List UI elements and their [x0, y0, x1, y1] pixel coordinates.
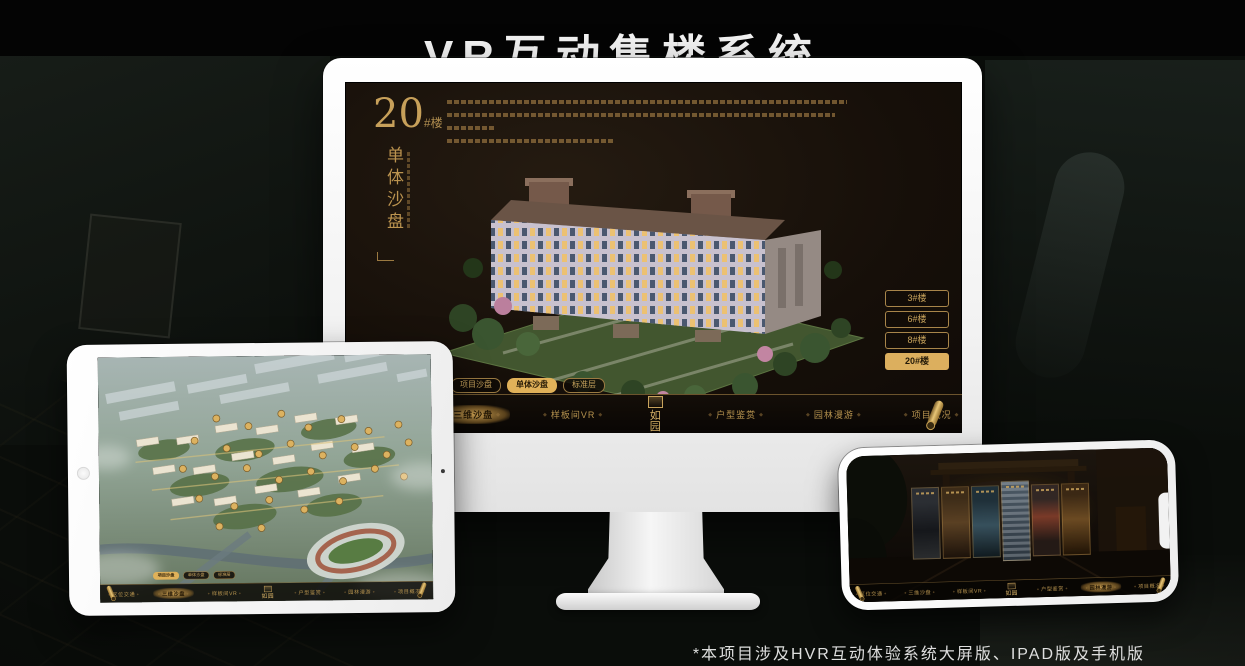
phone-frame: 区位交通 三维沙盘 样板间VR 如园 户型鉴赏 园林漫游 项目概况 [838, 439, 1179, 610]
sandbox-headline: 20#楼 单体沙盘 [373, 94, 443, 134]
floor-button-20[interactable]: 20#楼 [885, 353, 949, 370]
floor-button-3[interactable]: 3#楼 [885, 290, 949, 307]
floor-button-8[interactable]: 8#楼 [885, 332, 949, 349]
tablet-home-button[interactable] [77, 467, 90, 480]
brand-logo-text: 如园 [1005, 590, 1018, 596]
phone-notch [1158, 492, 1171, 548]
tablet-screen: 项目沙盘 单体沙盘 标准层 区位交通 三维沙盘 样板间VR 如园 户型鉴赏 园林… [98, 354, 434, 602]
tablet-camera [441, 469, 445, 473]
tab-single-building-sandbox[interactable]: 单体沙盘 [183, 571, 209, 579]
scene-panel-1[interactable] [911, 487, 941, 560]
floor-button-group: 3#楼 6#楼 8#楼 20#楼 [885, 290, 949, 374]
building-number-suffix: #楼 [424, 116, 443, 130]
text-line [447, 113, 835, 117]
nav-item-garden-roam[interactable]: 园林漫游 [1081, 581, 1122, 593]
phone-nav-bar: 区位交通 三维沙盘 样板间VR 如园 户型鉴赏 园林漫游 项目概况 [850, 575, 1171, 602]
headline-ornament [377, 252, 394, 261]
scene-panel-2[interactable] [941, 486, 971, 559]
page-root: VR互动售楼系统 20#楼 单体沙盘 [0, 0, 1245, 666]
scene-panel-5[interactable] [1031, 484, 1061, 557]
headline-subtitle: 单体沙盘 [381, 146, 406, 246]
nav-item-model-room-vr[interactable]: 样板间VR [203, 587, 246, 598]
brand-logo-text: 如园 [262, 593, 275, 599]
seal-icon [1008, 583, 1016, 589]
masterplan-aerial-view[interactable] [98, 354, 434, 602]
nav-item-3d-sandbox[interactable]: 三维沙盘 [899, 586, 940, 598]
nav-item-model-room-vr[interactable]: 样板间VR [948, 584, 991, 596]
tablet-frame: 项目沙盘 单体沙盘 标准层 区位交通 三维沙盘 样板间VR 如园 户型鉴赏 园林… [67, 341, 456, 616]
description-paragraph [447, 100, 847, 152]
nav-item-floorplans[interactable]: 户型鉴赏 [290, 586, 331, 597]
nav-item-3d-sandbox[interactable]: 三维沙盘 [153, 587, 194, 598]
brand-logo[interactable]: 如园 [648, 396, 663, 432]
phone-screen: 区位交通 三维沙盘 样板间VR 如园 户型鉴赏 园林漫游 项目概况 [846, 448, 1171, 603]
text-line [447, 139, 615, 143]
text-line [447, 126, 495, 130]
tablet-mode-tabs: 项目沙盘 单体沙盘 标准层 [153, 571, 235, 580]
monitor-base [556, 593, 760, 610]
tab-standard-floor[interactable]: 标准层 [213, 571, 235, 579]
nav-item-floorplans[interactable]: 户型鉴赏 [699, 405, 773, 424]
seal-icon [264, 586, 272, 592]
floor-button-6[interactable]: 6#楼 [885, 311, 949, 328]
tablet-nav-bar: 区位交通 三维沙盘 样板间VR 如园 户型鉴赏 园林漫游 项目概况 [100, 581, 433, 603]
headline-subtitle-english [407, 152, 410, 230]
tablet-app-ui: 项目沙盘 单体沙盘 标准层 区位交通 三维沙盘 样板间VR 如园 户型鉴赏 园林… [100, 569, 433, 603]
scene-panel-6[interactable] [1061, 483, 1091, 556]
text-line [447, 100, 847, 104]
footnote: *本项目涉及HVR互动体验系统大屏版、IPAD版及手机版 [693, 640, 1145, 664]
seal-icon [648, 396, 663, 408]
building-3d-render[interactable] [433, 148, 873, 398]
brand-logo[interactable]: 如园 [262, 586, 275, 599]
scene-panel-4[interactable] [1001, 480, 1031, 561]
tab-standard-floor[interactable]: 标准层 [563, 378, 605, 393]
tab-single-building-sandbox[interactable]: 单体沙盘 [507, 378, 557, 393]
nav-item-floorplans[interactable]: 户型鉴赏 [1032, 582, 1073, 594]
sandbox-mode-tabs: 项目沙盘 单体沙盘 标准层 [451, 378, 605, 393]
brand-logo[interactable]: 如园 [1005, 582, 1018, 595]
nav-item-model-room-vr[interactable]: 样板间VR [534, 405, 612, 424]
brand-logo-text: 如园 [648, 410, 663, 432]
tab-project-sandbox[interactable]: 项目沙盘 [153, 572, 179, 580]
building-number: 20 [373, 91, 424, 137]
tab-project-sandbox[interactable]: 项目沙盘 [451, 378, 501, 393]
scene-panel-3[interactable] [971, 485, 1001, 558]
nav-item-garden-roam[interactable]: 园林漫游 [797, 405, 871, 424]
nav-item-garden-roam[interactable]: 园林漫游 [339, 585, 380, 596]
